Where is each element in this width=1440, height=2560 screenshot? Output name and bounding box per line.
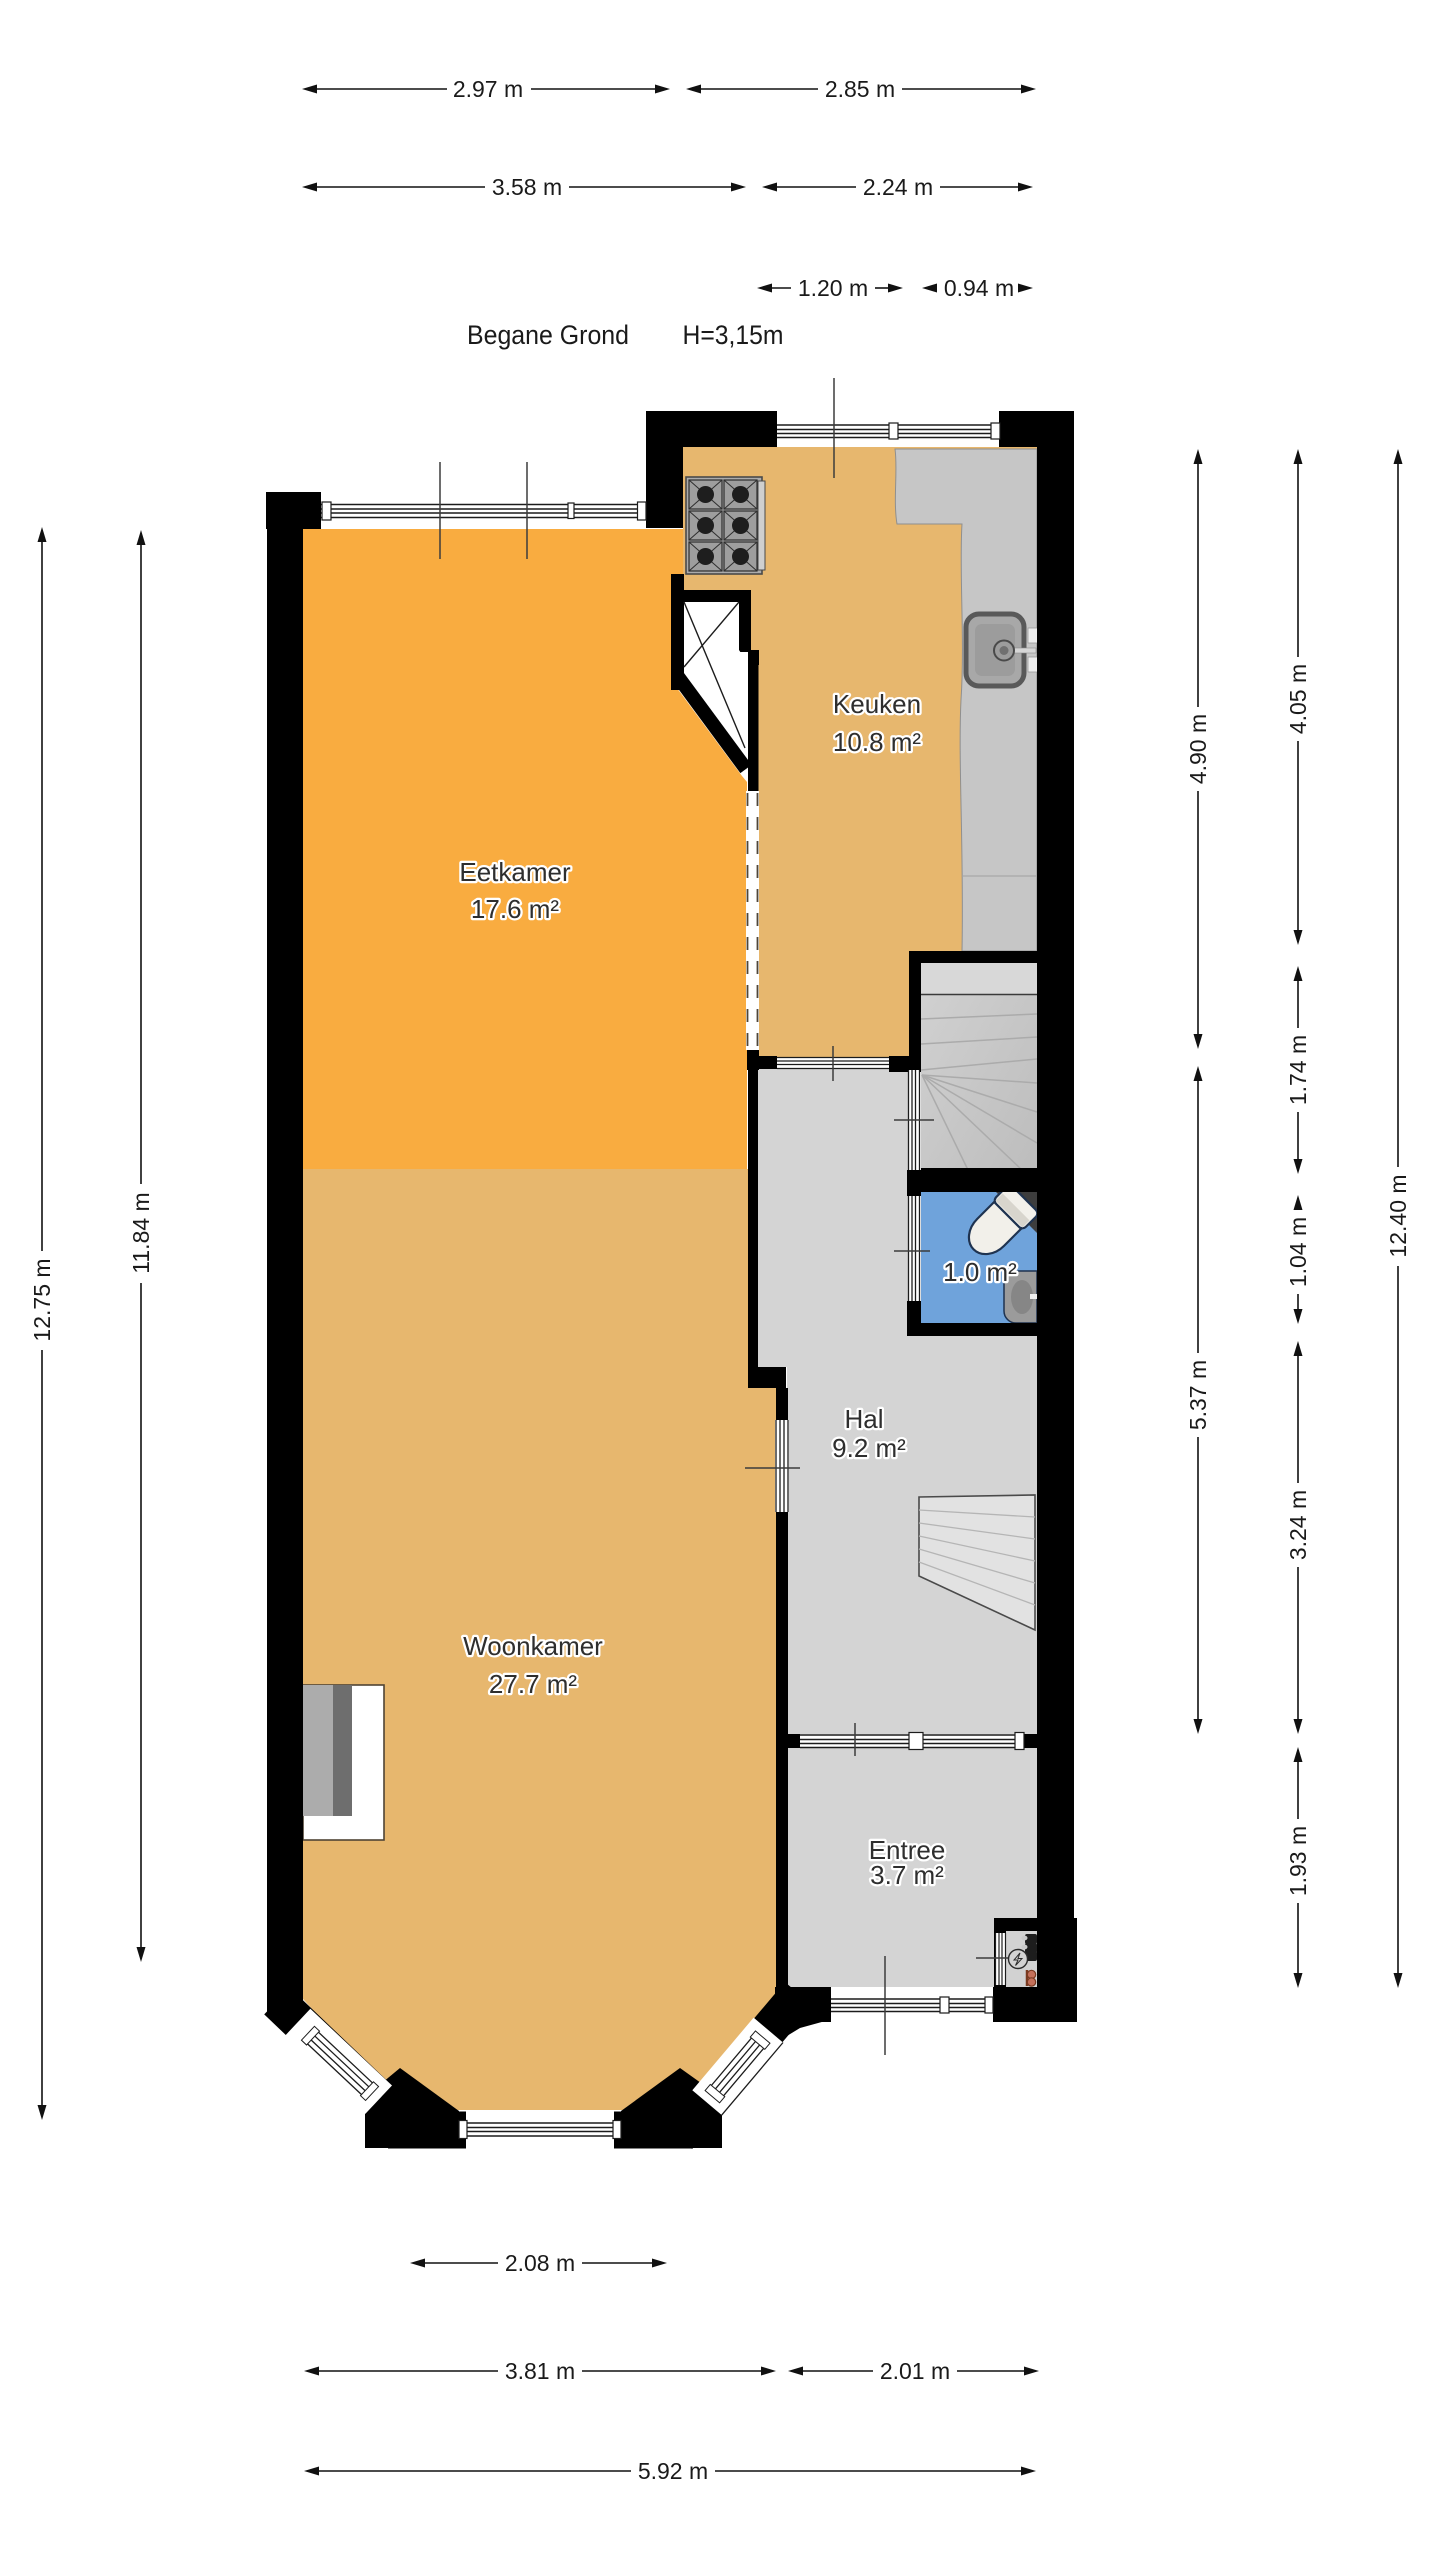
svg-text:4.05 m: 4.05 m xyxy=(1285,664,1311,734)
svg-text:1.20 m: 1.20 m xyxy=(798,275,868,301)
svg-text:11.84 m: 11.84 m xyxy=(128,1192,154,1273)
svg-text:2.97 m: 2.97 m xyxy=(453,76,523,102)
svg-text:2.24 m: 2.24 m xyxy=(863,174,933,200)
svg-text:Eetkamer: Eetkamer xyxy=(459,857,571,887)
svg-text:17.6 m²: 17.6 m² xyxy=(471,894,559,924)
svg-text:4.90 m: 4.90 m xyxy=(1185,714,1211,784)
svg-text:10.8 m²: 10.8 m² xyxy=(833,727,921,757)
svg-text:1.04 m: 1.04 m xyxy=(1285,1217,1311,1287)
svg-text:12.75 m: 12.75 m xyxy=(29,1258,55,1341)
svg-text:Woonkamer: Woonkamer xyxy=(463,1631,603,1661)
svg-text:1.74 m: 1.74 m xyxy=(1285,1035,1311,1105)
svg-text:2.08 m: 2.08 m xyxy=(505,2250,575,2276)
svg-text:5.92 m: 5.92 m xyxy=(638,2458,708,2484)
svg-text:2.01 m: 2.01 m xyxy=(880,2358,950,2384)
svg-text:1.93 m: 1.93 m xyxy=(1285,1826,1311,1896)
svg-text:2.85 m: 2.85 m xyxy=(825,76,895,102)
svg-text:5.37 m: 5.37 m xyxy=(1185,1360,1211,1430)
svg-text:3.24 m: 3.24 m xyxy=(1285,1490,1311,1560)
svg-text:1.0 m²: 1.0 m² xyxy=(943,1257,1017,1287)
svg-text:12.40 m: 12.40 m xyxy=(1385,1174,1411,1257)
svg-text:3.81 m: 3.81 m xyxy=(505,2358,575,2384)
svg-text:Keuken: Keuken xyxy=(833,689,921,719)
svg-text:0.94 m: 0.94 m xyxy=(944,275,1014,301)
svg-text:27.7 m²: 27.7 m² xyxy=(489,1669,577,1699)
svg-text:Hal: Hal xyxy=(844,1404,883,1434)
svg-text:9.2 m²: 9.2 m² xyxy=(832,1433,906,1463)
svg-text:H=3,15m: H=3,15m xyxy=(683,320,784,350)
svg-text:Begane Grond: Begane Grond xyxy=(467,320,629,350)
svg-text:3.7 m²: 3.7 m² xyxy=(870,1860,944,1890)
svg-text:3.58 m: 3.58 m xyxy=(492,174,562,200)
